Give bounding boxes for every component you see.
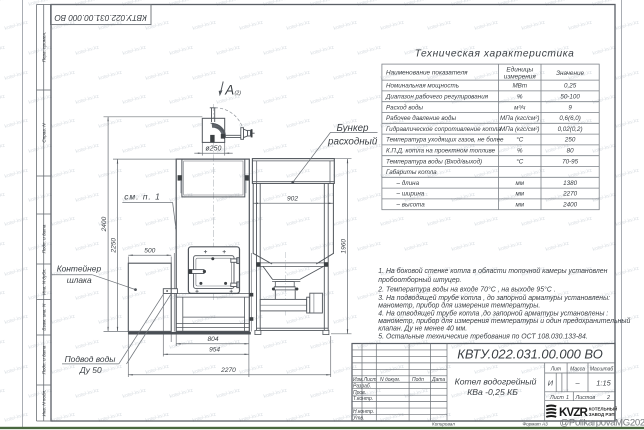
svg-text:Температура уходящих газов, не: Температура уходящих газов, не более (386, 137, 504, 144)
svg-text:манометр, прибор для измерения: манометр, прибор для измерения температу… (378, 317, 630, 325)
svg-text:Инв. N подл.: Инв. N подл. (41, 390, 46, 417)
svg-text:–: – (574, 378, 580, 387)
svg-text:1960: 1960 (340, 239, 347, 254)
svg-text:0,02(0,2): 0,02(0,2) (558, 126, 583, 133)
svg-text:Котел водогрейный: Котел водогрейный (455, 377, 537, 387)
svg-text:Подп. и дата: Подп. и дата (41, 345, 46, 374)
svg-text:N докум.: N докум. (380, 377, 400, 383)
svg-text:°С: °С (516, 158, 523, 165)
svg-text:пробоотборный штуцер.: пробоотборный штуцер. (378, 276, 461, 284)
svg-text:Лит: Лит (550, 366, 561, 372)
svg-text:50-100: 50-100 (560, 94, 580, 101)
svg-text:КВТУ.022.031.00.000 ВО: КВТУ.022.031.00.000 ВО (54, 13, 147, 22)
svg-text:9: 9 (568, 104, 572, 111)
svg-text:Перв. примен.: Перв. примен. (41, 32, 46, 63)
svg-text:2250: 2250 (110, 238, 117, 254)
svg-text:шлака: шлака (67, 275, 92, 285)
svg-text:– ширина: – ширина (396, 191, 425, 198)
svg-text:3. На подводящей трубе котла: 3. На подводящей трубе котла , до запорн… (378, 294, 610, 302)
svg-text:°С: °С (516, 137, 523, 144)
svg-text:Контейнер: Контейнер (57, 263, 102, 273)
svg-text:Разраб.: Разраб. (353, 383, 371, 389)
svg-text:МПа (кгс/см²): МПа (кгс/см²) (500, 115, 539, 122)
svg-text:500: 500 (144, 248, 155, 255)
svg-text:ЗАВОД РЭП: ЗАВОД РЭП (589, 412, 615, 417)
svg-text:Н.контр.: Н.контр. (353, 409, 374, 415)
svg-text:1. На боковой стенке котла в: 1. На боковой стенке котла в области топ… (378, 267, 607, 275)
svg-text:Номинальная мощность: Номинальная мощность (386, 83, 459, 90)
svg-text:250: 250 (564, 137, 576, 144)
svg-text:К.П.Д. котла на проектном топл: К.П.Д. котла на проектном топливе (386, 148, 496, 155)
svg-text:804: 804 (207, 336, 218, 343)
svg-text:5. Остальные технические треб: 5. Остальные технические требования по О… (378, 333, 588, 341)
svg-text:80: 80 (567, 148, 574, 155)
svg-text:Дата: Дата (431, 377, 445, 383)
svg-text:(2): (2) (235, 91, 242, 97)
svg-text:Листов: Листов (575, 395, 596, 401)
svg-text:Гидравлическое сопротивление к: Гидравлическое сопротивление котла (386, 126, 501, 133)
svg-text:2400: 2400 (101, 216, 108, 232)
svg-text:Т.контр.: Т.контр. (353, 396, 373, 402)
svg-text:Диапазон рабочего регулировани: Диапазон рабочего регулирования (385, 94, 489, 101)
svg-text:КОТЕЛЬНЫЙ: КОТЕЛЬНЫЙ (589, 406, 618, 411)
svg-text:Подп. и дата: Подп. и дата (41, 224, 46, 253)
svg-text:Единицы: Единицы (506, 66, 533, 74)
svg-text:Копировал: Копировал (432, 422, 455, 427)
svg-text:КВТУ.022.031.00.000 ВО: КВТУ.022.031.00.000 ВО (457, 346, 603, 361)
svg-text:Расход воды: Расход воды (386, 104, 423, 111)
svg-text:2. Температура воды на входе: 2. Температура воды на входе 70°С , на в… (377, 285, 555, 293)
svg-text:Подп: Подп (412, 377, 424, 383)
svg-text:мм: мм (515, 191, 524, 198)
svg-text:КВа -0,25 КБ: КВа -0,25 КБ (467, 387, 518, 397)
svg-text:мм: мм (515, 202, 524, 209)
svg-text:2400: 2400 (562, 202, 577, 209)
svg-text:2270: 2270 (220, 367, 236, 374)
svg-text:Рабочее давление воды: Рабочее давление воды (386, 115, 456, 122)
svg-text:Лист: Лист (549, 395, 564, 401)
svg-text:954: 954 (209, 347, 220, 354)
svg-text:Справ. N: Справ. N (41, 123, 46, 143)
svg-text:Инв. N дубл.: Инв. N дубл. (41, 268, 46, 295)
svg-text:Подвод воды: Подвод воды (65, 354, 116, 364)
svg-text:манометр, прибор для измерения: манометр, прибор для измерения температу… (378, 301, 540, 309)
svg-text:2: 2 (606, 395, 610, 401)
svg-text:Взам. инв. N: Взам. инв. N (41, 303, 46, 330)
svg-text:клапан. Ду не менее 40 мм.: клапан. Ду не менее 40 мм. (378, 326, 467, 333)
svg-text:Масса: Масса (570, 366, 585, 372)
svg-text:мм: мм (515, 180, 524, 187)
svg-text:Ду 50: Ду 50 (79, 365, 102, 375)
svg-text:расходный: расходный (327, 137, 378, 148)
svg-text:@PolikarpovaMG2021: @PolikarpovaMG2021 (560, 418, 644, 429)
svg-text:0,6(6,0): 0,6(6,0) (559, 115, 581, 122)
svg-text:1: 1 (566, 395, 569, 401)
svg-text:Значение: Значение (556, 70, 584, 77)
svg-text:– высота: – высота (396, 202, 426, 209)
svg-text:%: % (517, 148, 523, 155)
svg-text:70-95: 70-95 (562, 158, 579, 165)
svg-text:1:15: 1:15 (596, 379, 611, 388)
svg-text:Наименование показателя: Наименование показателя (386, 70, 468, 77)
svg-text:%: % (517, 94, 523, 101)
svg-text:измерения: измерения (504, 74, 537, 81)
svg-text:м³/ч: м³/ч (514, 104, 526, 111)
svg-text:см. п. 1: см. п. 1 (124, 191, 161, 201)
svg-text:И: И (548, 379, 554, 388)
svg-text:2270: 2270 (562, 191, 577, 198)
svg-text:Пров.: Пров. (353, 390, 366, 396)
svg-text:МВт: МВт (512, 83, 527, 90)
svg-text:4. На отводящей трубе котла ,: 4. На отводящей трубе котла ,до запорной… (378, 310, 608, 318)
svg-text:902: 902 (287, 196, 298, 203)
svg-text:Масштаб: Масштаб (590, 366, 614, 372)
svg-text:0,25: 0,25 (564, 83, 577, 90)
svg-text:1380: 1380 (563, 180, 577, 187)
svg-text:МПа (кгс/см²): МПа (кгс/см²) (500, 126, 539, 133)
svg-text:Температура воды (Вход/выход): Температура воды (Вход/выход) (386, 158, 482, 165)
svg-text:А: А (224, 83, 234, 98)
svg-text:Техническая характеристика: Техническая характеристика (415, 49, 575, 60)
svg-text:Формат А3: Формат А3 (523, 422, 549, 427)
svg-text:Габариты котла: Габариты котла (386, 169, 437, 176)
svg-text:Утв.: Утв. (353, 416, 364, 422)
svg-text:– длина: – длина (396, 180, 420, 187)
svg-text:Изм.Лист: Изм.Лист (353, 377, 377, 383)
